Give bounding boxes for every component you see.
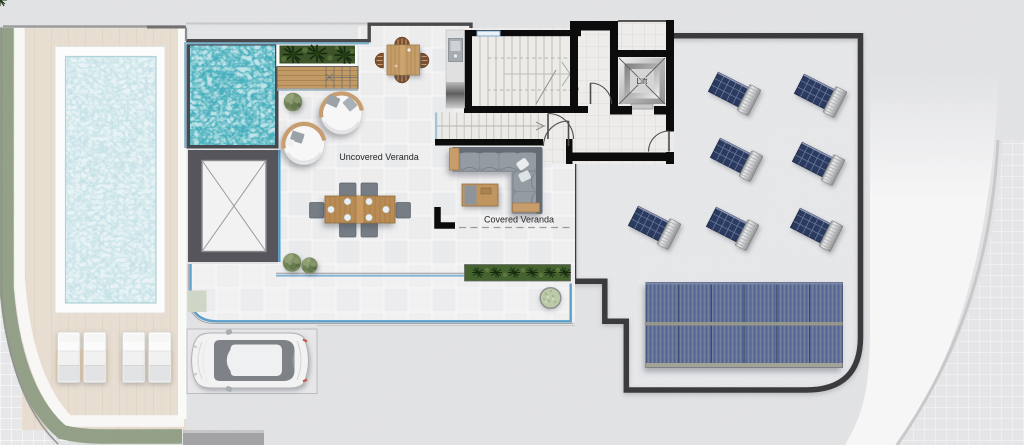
svg-text:Covered Veranda: Covered Veranda <box>484 215 554 225</box>
svg-text:Uncovered Veranda: Uncovered Veranda <box>339 152 419 162</box>
svg-text:Lift: Lift <box>637 77 648 86</box>
